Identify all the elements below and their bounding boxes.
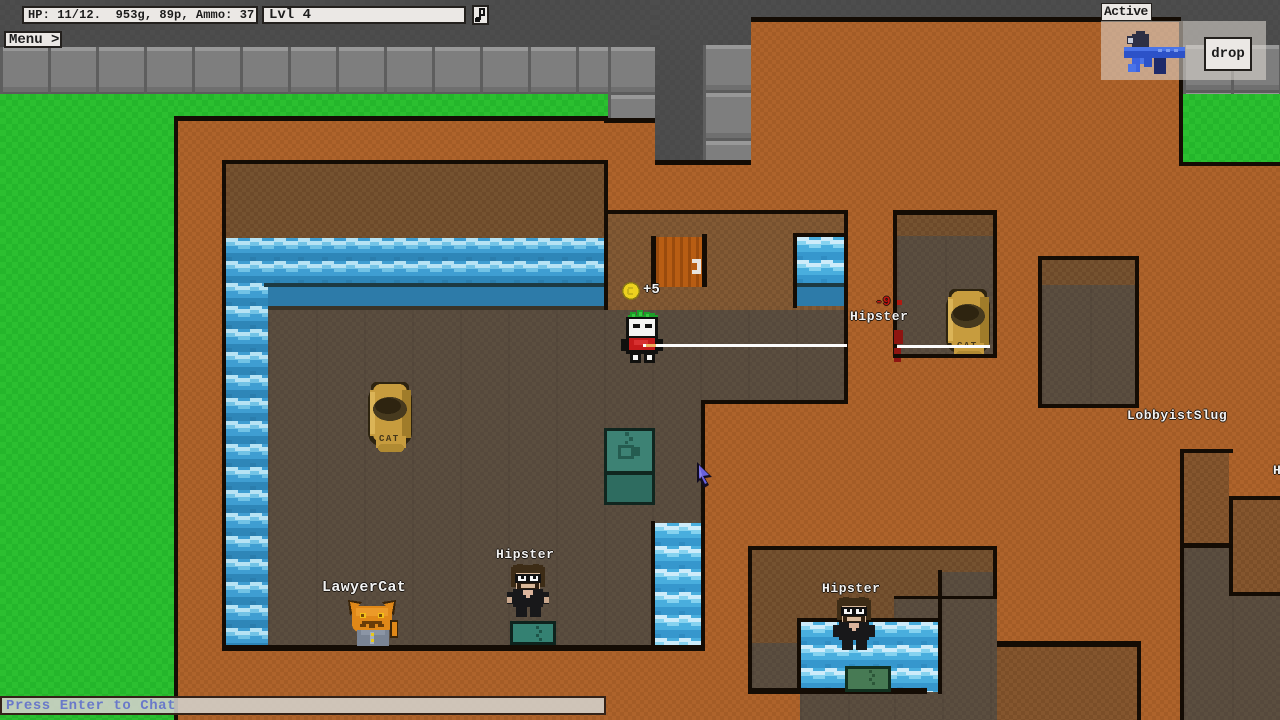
svg-text:CAT: CAT (379, 434, 400, 444)
